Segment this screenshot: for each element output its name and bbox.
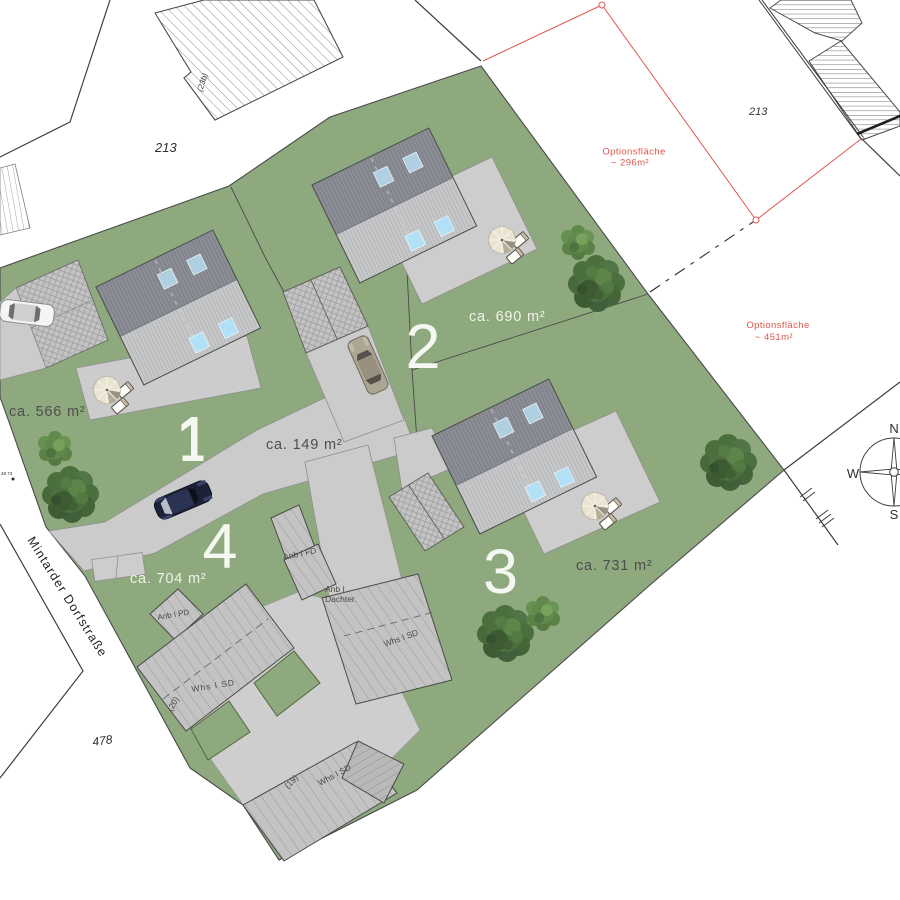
svg-text:213: 213	[154, 140, 177, 155]
svg-text:Anb I: Anb I	[325, 584, 345, 594]
svg-text:ca. 731 m²: ca. 731 m²	[576, 558, 653, 574]
svg-text:ca. 704 m²: ca. 704 m²	[130, 571, 207, 587]
svg-text:213: 213	[748, 106, 768, 118]
svg-text:~ 451m²: ~ 451m²	[755, 332, 793, 343]
svg-text:3: 3	[483, 537, 518, 607]
svg-text:W: W	[847, 466, 860, 481]
svg-text:ca. 566 m²: ca. 566 m²	[9, 404, 86, 420]
svg-text:ca. 690 m²: ca. 690 m²	[469, 309, 546, 325]
svg-text:~ 296m²: ~ 296m²	[611, 158, 649, 169]
svg-text:N: N	[889, 421, 898, 436]
svg-text:Optionsfläche: Optionsfläche	[602, 147, 665, 158]
svg-text:Optionsfläche: Optionsfläche	[746, 320, 809, 331]
svg-text:48.73: 48.73	[1, 471, 13, 476]
svg-text:2: 2	[405, 312, 440, 382]
svg-text:4: 4	[202, 512, 237, 582]
svg-text:ca. 149 m²: ca. 149 m²	[266, 437, 343, 453]
svg-text:S: S	[890, 507, 899, 522]
svg-text:478: 478	[91, 732, 113, 749]
svg-text:Dachter.: Dachter.	[325, 594, 357, 604]
